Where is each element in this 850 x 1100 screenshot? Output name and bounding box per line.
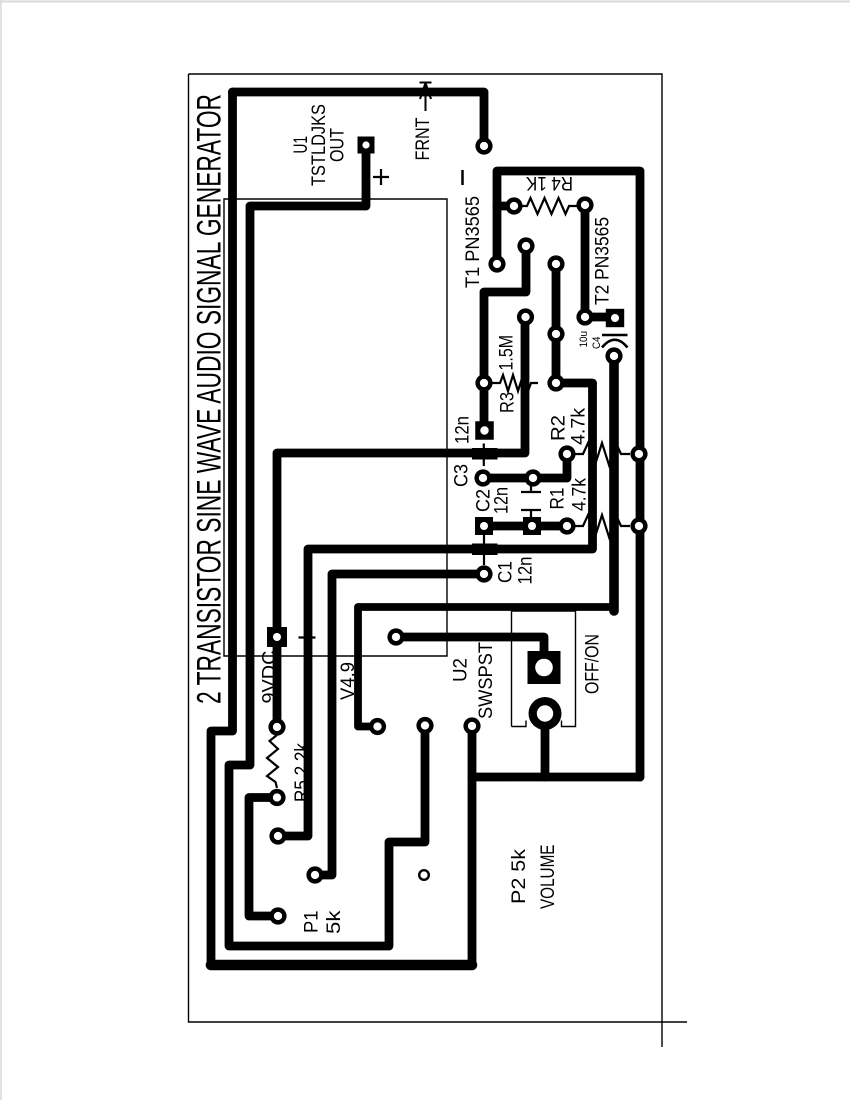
svg-text:SWSPST: SWSPST [474, 642, 496, 719]
svg-text:C1: C1 [494, 561, 516, 583]
svg-text:12n: 12n [514, 557, 536, 585]
svg-text:12n: 12n [451, 416, 473, 444]
svg-text:C4: C4 [591, 336, 603, 349]
svg-text:R3: R3 [496, 392, 518, 413]
svg-text:4.7k: 4.7k [568, 478, 590, 511]
svg-text:VOLUME: VOLUME [536, 845, 558, 910]
svg-text:V4.9: V4.9 [336, 662, 358, 700]
svg-text:U2: U2 [449, 658, 471, 682]
svg-text:9VDC: 9VDC [258, 651, 280, 704]
svg-text:R1: R1 [546, 488, 568, 510]
svg-text:2 TRANSISTOR SINE WAVE AUDIO S: 2 TRANSISTOR SINE WAVE AUDIO SIGNAL GENE… [190, 94, 228, 704]
svg-text:10u: 10u [578, 331, 590, 348]
svg-text:T1 PN3565: T1 PN3565 [461, 196, 483, 288]
svg-text:R5 2.2k: R5 2.2k [290, 743, 312, 802]
svg-text:P2 5k: P2 5k [507, 849, 529, 904]
svg-text:4.7k: 4.7k [567, 408, 589, 445]
svg-text:T2 PN3565: T2 PN3565 [591, 217, 613, 305]
svg-text:1.5M: 1.5M [495, 335, 517, 371]
svg-text:P1: P1 [300, 911, 322, 934]
svg-text:OFF/ON: OFF/ON [581, 634, 603, 694]
svg-text:C3: C3 [450, 464, 472, 487]
svg-text:OUT: OUT [326, 128, 348, 162]
svg-text:FRNT: FRNT [411, 117, 433, 160]
svg-text:R4 1K: R4 1K [526, 173, 573, 195]
svg-text:12n: 12n [490, 487, 512, 514]
svg-text:5k: 5k [322, 910, 344, 934]
svg-text:R2: R2 [547, 415, 569, 441]
